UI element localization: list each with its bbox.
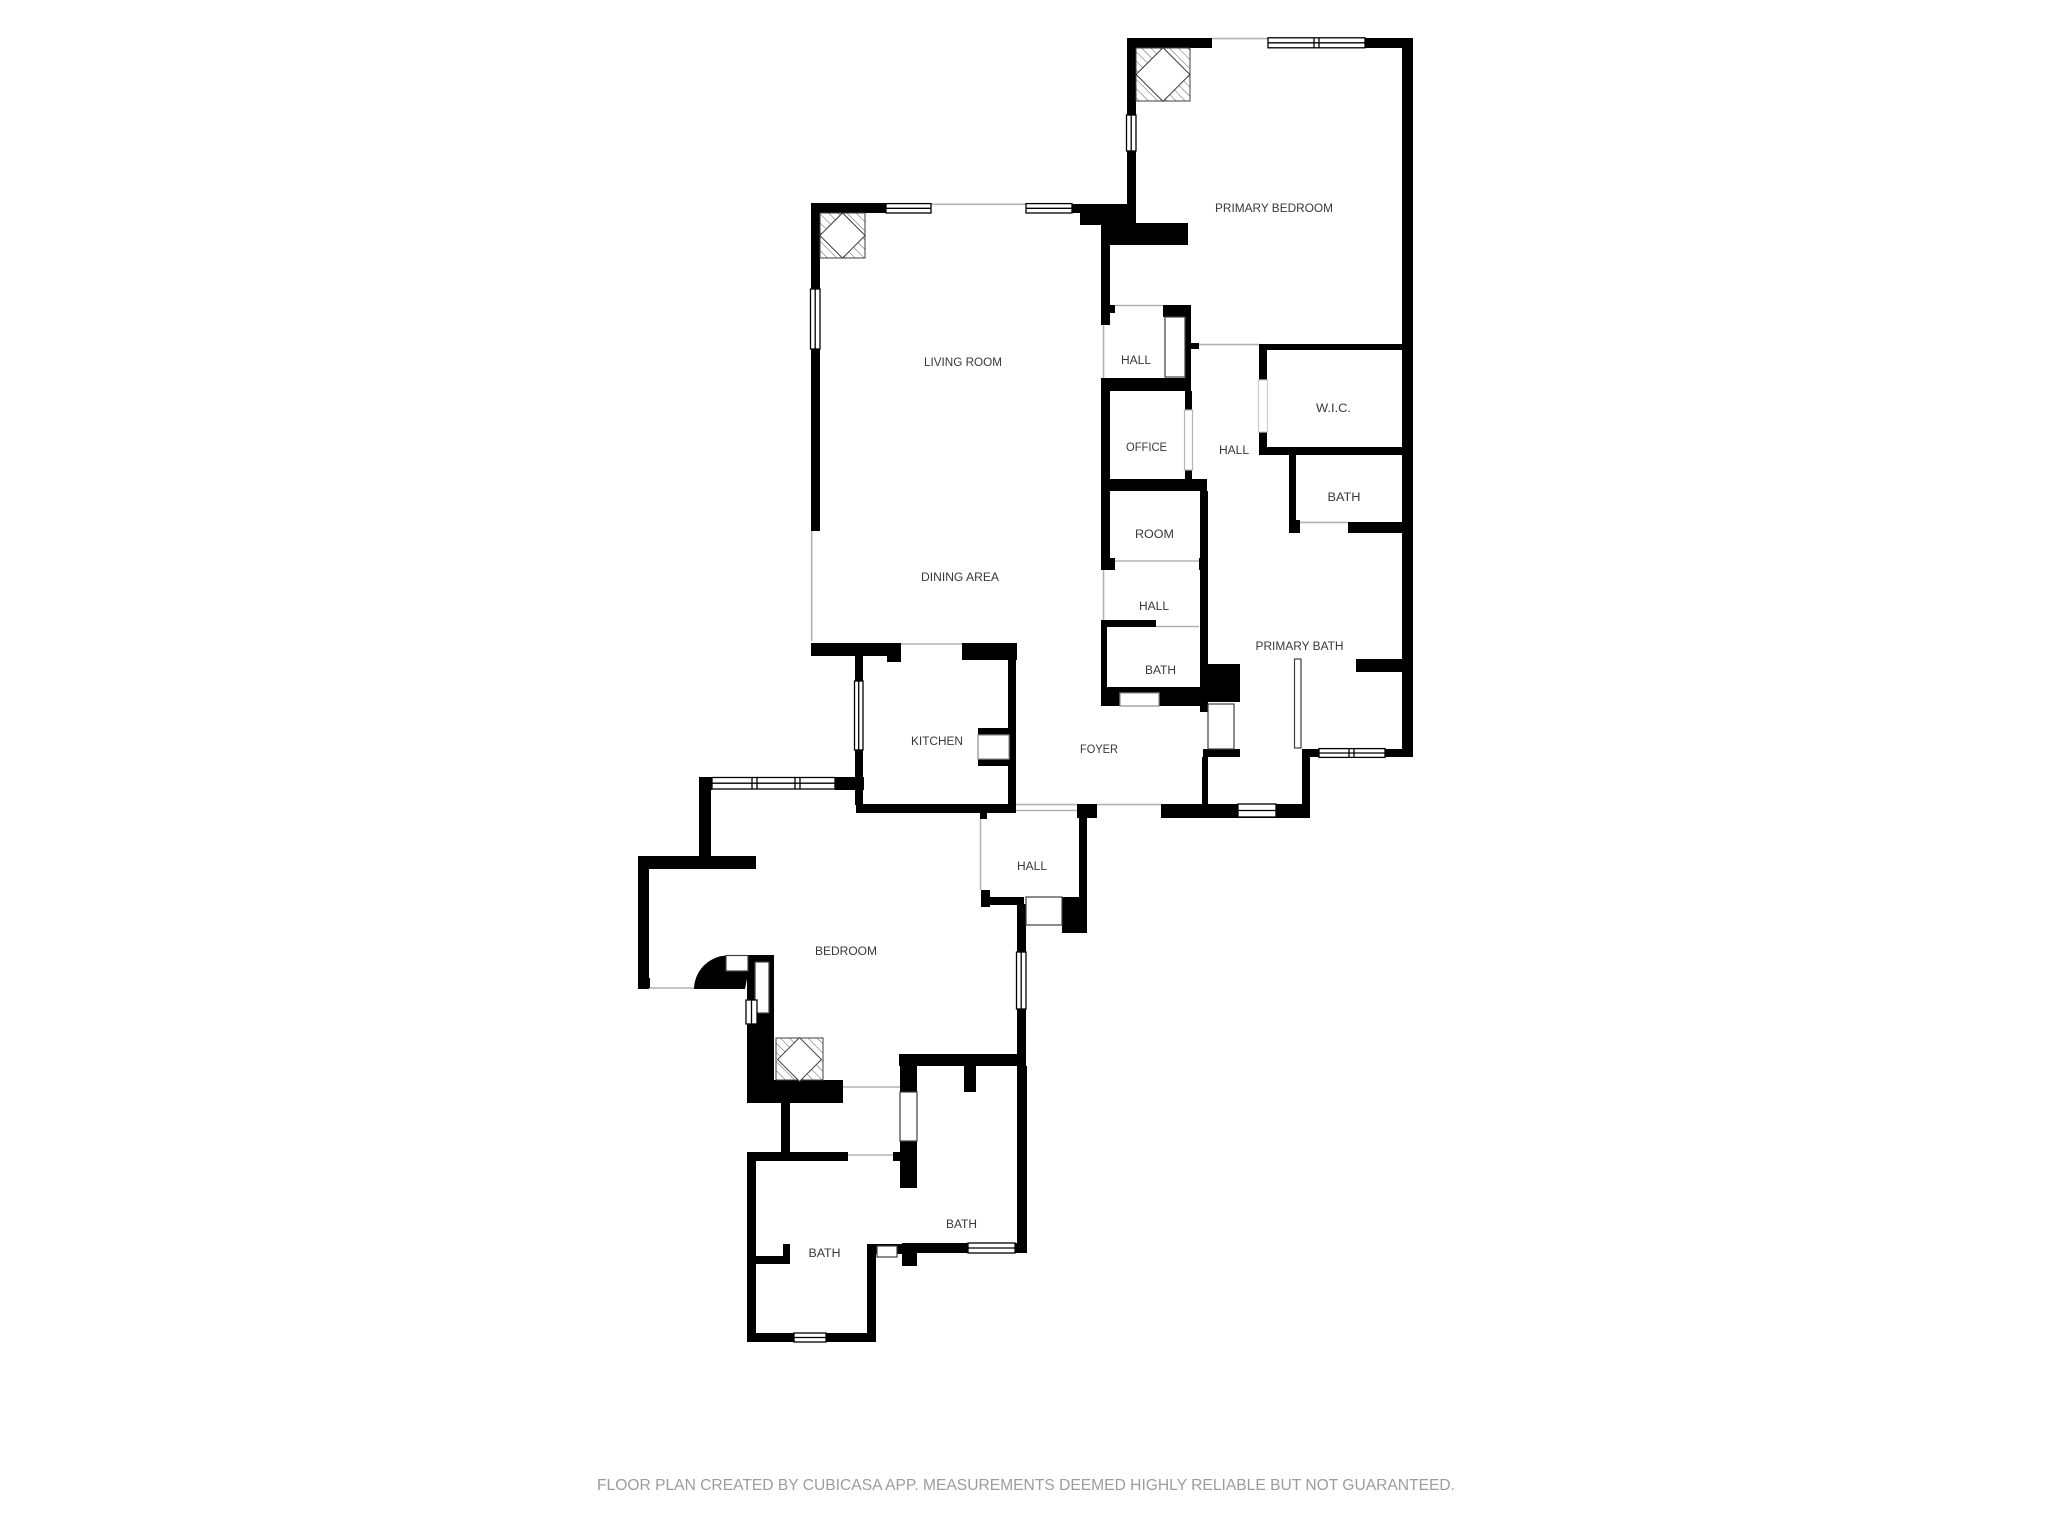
- svg-text:BATH: BATH: [946, 1219, 977, 1231]
- svg-text:BEDROOM: BEDROOM: [815, 946, 877, 958]
- svg-text:PRIMARY BATH: PRIMARY BATH: [1256, 641, 1344, 653]
- svg-text:OFFICE: OFFICE: [1126, 442, 1167, 454]
- svg-text:HALL: HALL: [1017, 861, 1048, 873]
- svg-text:BATH: BATH: [1145, 665, 1176, 677]
- svg-text:DINING AREA: DINING AREA: [921, 572, 999, 584]
- svg-text:ROOM: ROOM: [1135, 529, 1174, 541]
- svg-text:PRIMARY BEDROOM: PRIMARY BEDROOM: [1215, 203, 1333, 215]
- svg-text:HALL: HALL: [1121, 355, 1152, 367]
- svg-text:HALL: HALL: [1219, 445, 1250, 457]
- svg-text:FLOOR PLAN CREATED BY CUBICASA: FLOOR PLAN CREATED BY CUBICASA APP. MEAS…: [597, 1477, 1455, 1494]
- svg-text:W.I.C.: W.I.C.: [1316, 403, 1351, 415]
- svg-text:HALL: HALL: [1139, 601, 1170, 613]
- svg-text:BATH: BATH: [809, 1248, 841, 1260]
- svg-text:LIVING ROOM: LIVING ROOM: [924, 357, 1002, 369]
- svg-text:BATH: BATH: [1328, 492, 1361, 504]
- svg-text:FOYER: FOYER: [1080, 744, 1118, 756]
- svg-text:KITCHEN: KITCHEN: [911, 736, 963, 748]
